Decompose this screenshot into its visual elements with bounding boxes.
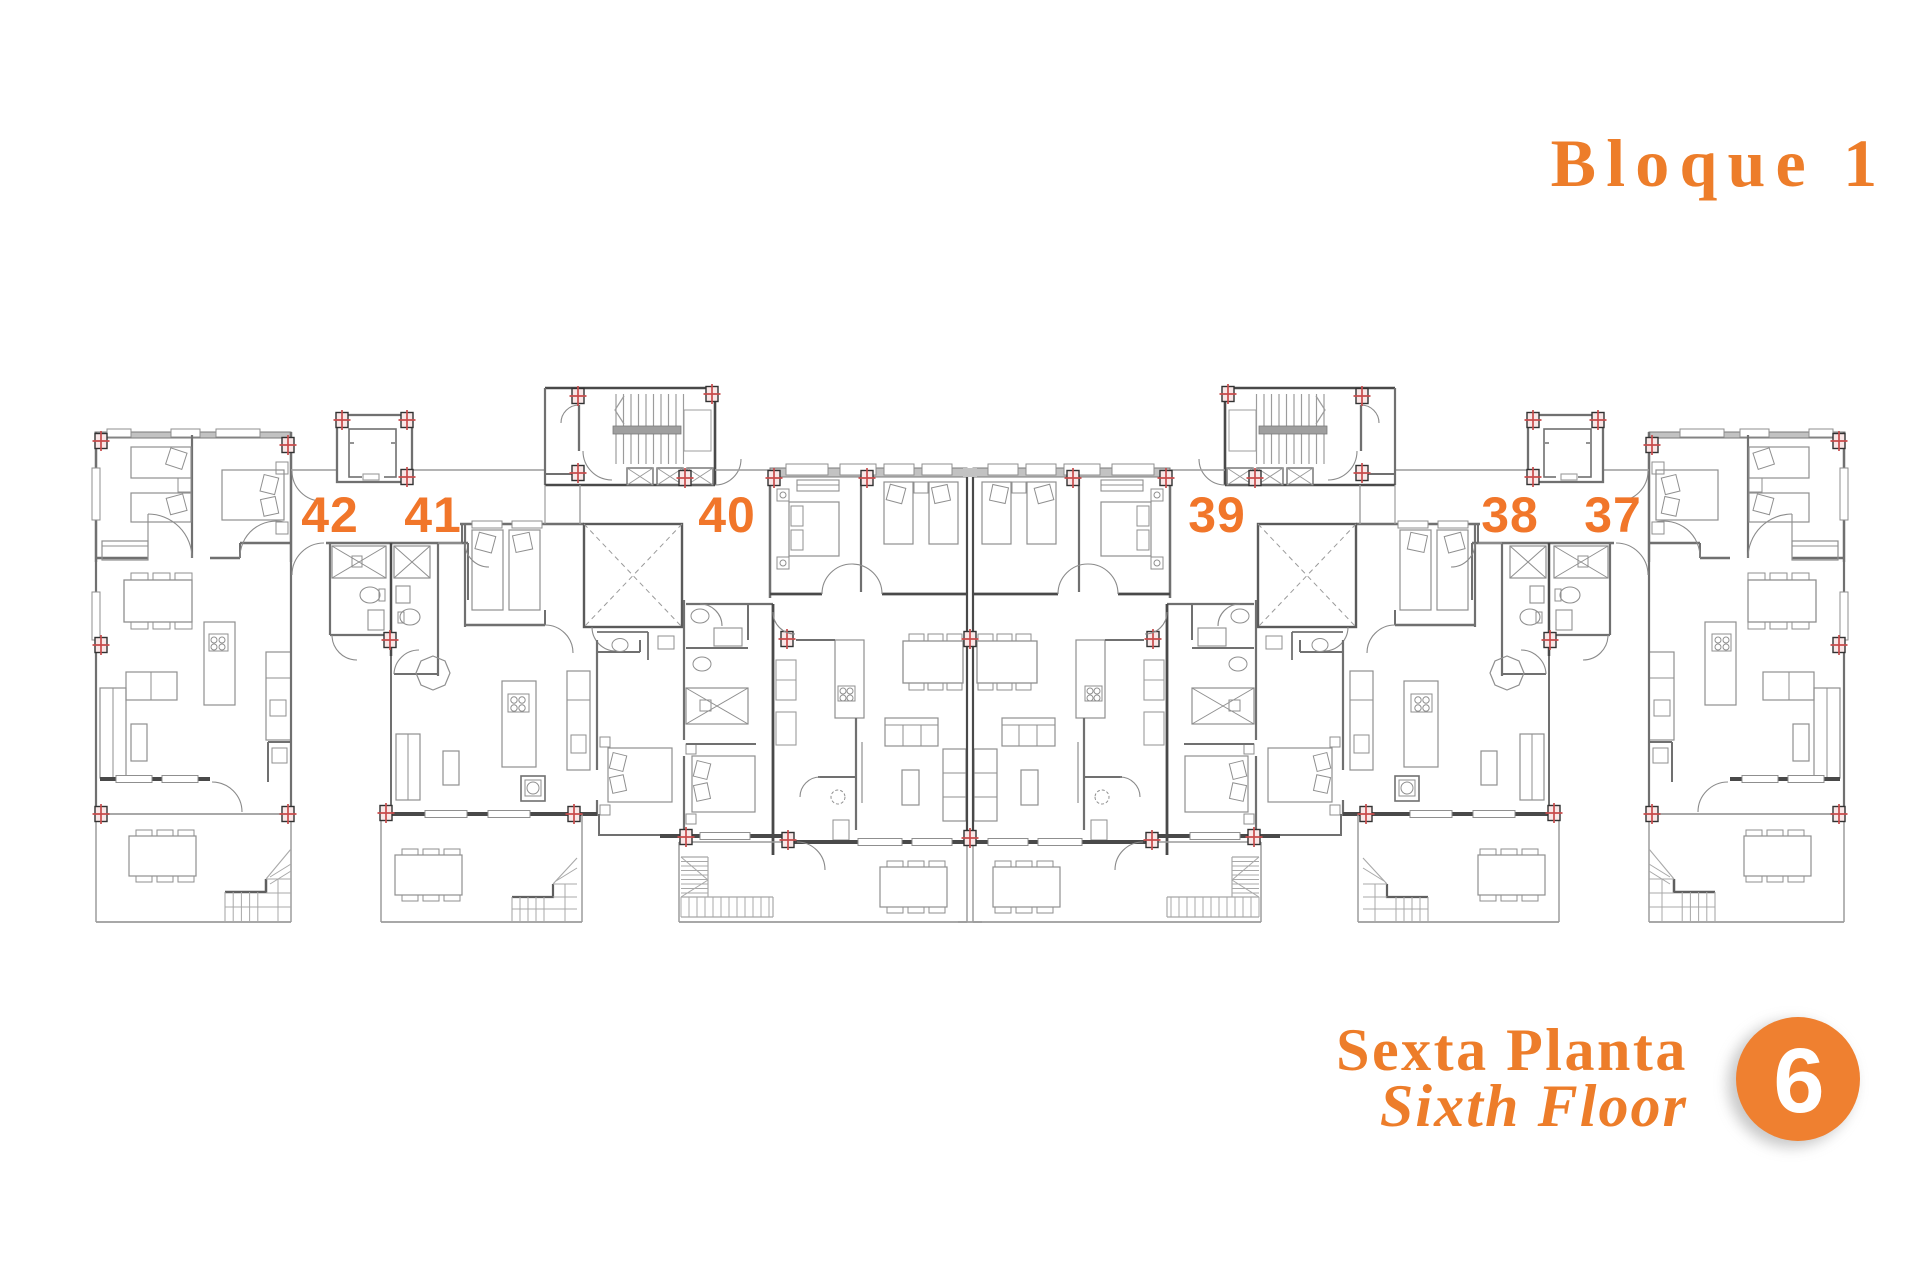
svg-text:41: 41 <box>404 487 462 543</box>
svg-text:38: 38 <box>1481 487 1539 543</box>
svg-text:Sixth Floor: Sixth Floor <box>1380 1073 1688 1139</box>
svg-text:Bloque 1: Bloque 1 <box>1551 125 1888 201</box>
svg-text:37: 37 <box>1584 487 1642 543</box>
svg-text:6: 6 <box>1773 1030 1824 1132</box>
svg-text:42: 42 <box>301 487 359 543</box>
svg-text:40: 40 <box>698 487 756 543</box>
svg-text:39: 39 <box>1188 487 1246 543</box>
